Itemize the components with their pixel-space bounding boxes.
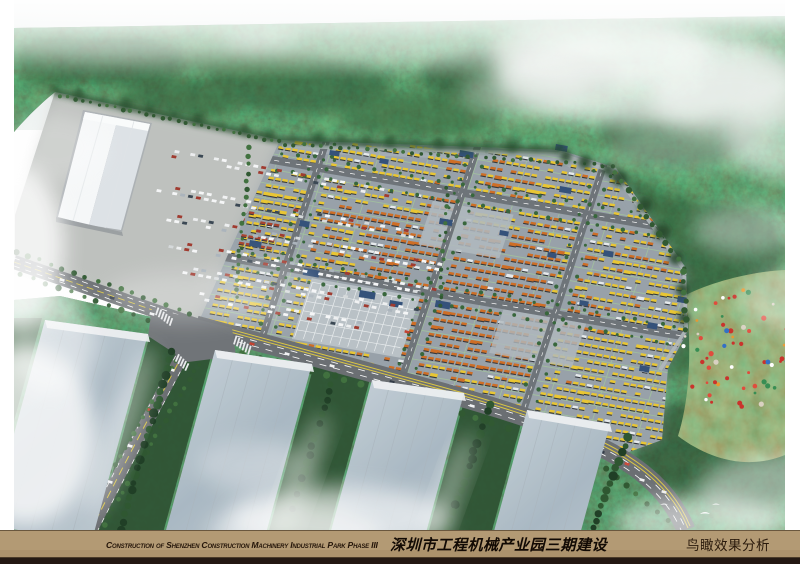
svg-text:深圳市工程机械产业园三期建设: 深圳市工程机械产业园三期建设 [390, 536, 609, 554]
svg-text:Construction of Shenzhen Const: Construction of Shenzhen Construction Ma… [106, 540, 379, 550]
svg-text:鸟瞰效果分析: 鸟瞰效果分析 [686, 538, 770, 553]
